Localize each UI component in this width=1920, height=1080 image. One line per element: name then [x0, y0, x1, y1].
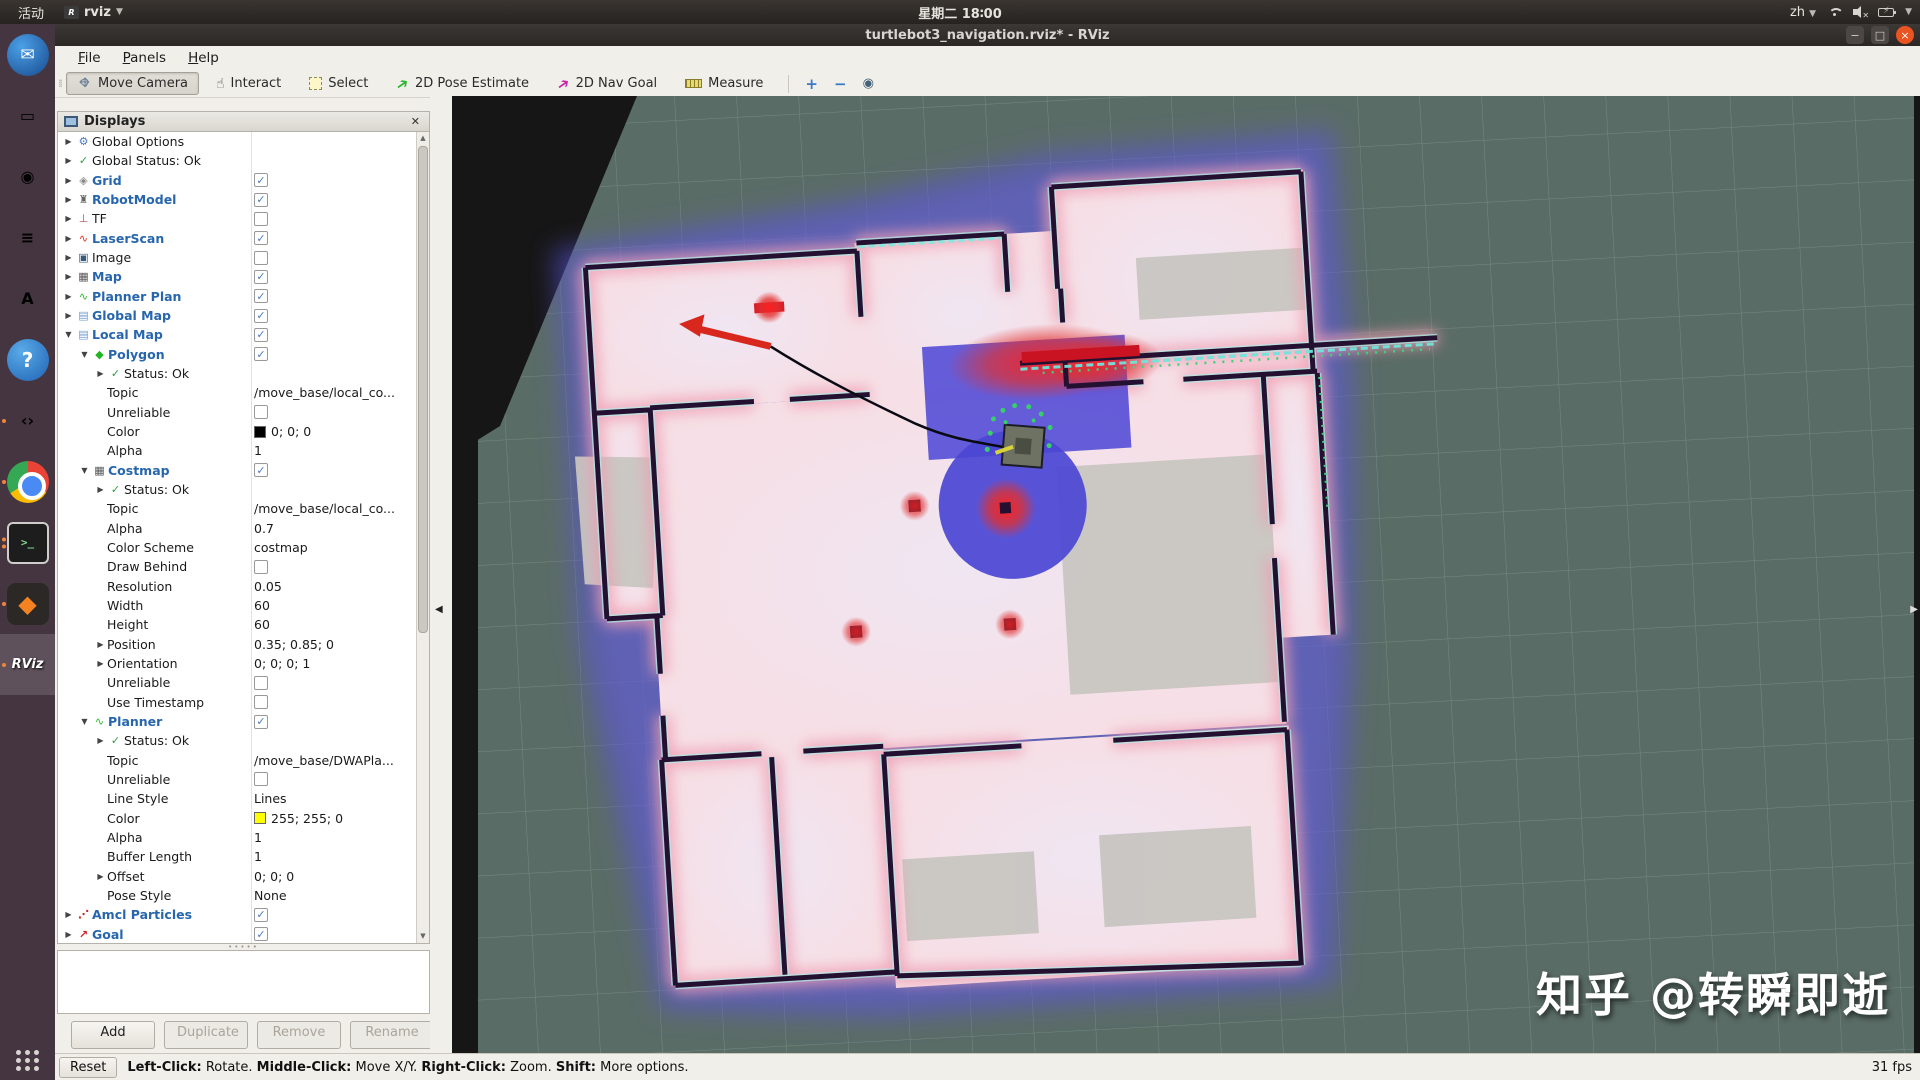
displays-tree: ▲ ▼ ▶⚙Global Options▶✓Global Status: Ok▶…: [57, 132, 430, 944]
tool-interact[interactable]: ☝Interact: [205, 72, 292, 96]
app-menu-label: rviz: [84, 5, 111, 20]
tree-value: 0.35; 0.85; 0: [254, 637, 334, 652]
tree-row-robotmodel[interactable]: ▶♜RobotModel✓: [58, 190, 429, 209]
gazebo-icon: ◆: [7, 583, 49, 625]
tree-row-position[interactable]: ▶Position0.35; 0.85; 0: [58, 635, 429, 654]
tree-label: Costmap: [108, 463, 170, 478]
expander-icon[interactable]: ▶: [62, 292, 75, 301]
tree-label: Status: Ok: [124, 733, 189, 748]
amcl-icon: ⋰: [75, 908, 92, 921]
tree-label: Local Map: [92, 327, 163, 342]
tree-row-amcl-particles[interactable]: ▶⋰Amcl Particles✓: [58, 905, 429, 924]
music-player-icon: ◉: [7, 156, 49, 198]
checkbox-unchecked[interactable]: [254, 676, 268, 690]
tree-row-topic[interactable]: Topic/move_base/DWAPla...: [58, 751, 429, 770]
displays-panel-title: Displays: [84, 114, 145, 129]
tree-label: Planner: [108, 714, 162, 729]
fps-counter: 31 fps: [1872, 1060, 1920, 1075]
nav-goal-icon: ➔: [553, 73, 574, 95]
toolbar-grip[interactable]: ⁞⁞: [55, 77, 66, 90]
displays-panel-header[interactable]: Displays ✕: [57, 111, 430, 132]
collapse-left-icon[interactable]: ◀: [435, 604, 443, 615]
expander-icon[interactable]: ▶: [62, 311, 75, 320]
value-text[interactable]: 0; 0; 0: [254, 869, 294, 884]
checkbox-checked[interactable]: ✓: [254, 193, 268, 207]
grid-icon: ◈: [75, 174, 92, 187]
tree-row-tf[interactable]: ▶⊥TF: [58, 209, 429, 228]
launcher-item-terminal-icon[interactable]: >_: [0, 512, 55, 573]
tree-value: ✓: [254, 328, 268, 342]
menubar: FilePanelsHelp: [55, 46, 1920, 70]
tree-value: 1: [254, 849, 262, 864]
image-icon: ▣: [75, 251, 92, 264]
expander-icon[interactable]: ▶: [94, 369, 107, 378]
tree-row-color-scheme[interactable]: Color Schemecostmap: [58, 538, 429, 557]
value-text[interactable]: 1: [254, 443, 262, 458]
tool-measure[interactable]: Measure: [674, 72, 774, 95]
tree-row-status-ok[interactable]: ▶✓Status: Ok: [58, 480, 429, 499]
expander-icon[interactable]: ▶: [62, 253, 75, 262]
checkbox-checked[interactable]: ✓: [254, 715, 268, 729]
menu-help[interactable]: Help: [179, 48, 228, 68]
expander-icon[interactable]: ▼: [78, 466, 91, 475]
tree-row-laserscan[interactable]: ▶∿LaserScan✓: [58, 229, 429, 248]
select-icon: [309, 77, 322, 90]
tool-label: 2D Pose Estimate: [415, 76, 529, 91]
checkbox-checked[interactable]: ✓: [254, 289, 268, 303]
tree-label: Planner Plan: [92, 289, 181, 304]
value-text[interactable]: 0.05: [254, 579, 282, 594]
launcher-item-music-player-icon[interactable]: ◉: [0, 146, 55, 207]
expander-icon[interactable]: ▶: [62, 176, 75, 185]
tree-value: [254, 560, 268, 574]
measure-icon: [685, 79, 702, 88]
activities-button[interactable]: 活动: [12, 3, 50, 22]
tree-resize-handle[interactable]: •••••: [57, 944, 430, 949]
tree-row-local-map[interactable]: ▼▤Local Map✓: [58, 325, 429, 344]
tree-row-costmap[interactable]: ▼▦Costmap✓: [58, 461, 429, 480]
toolbar-separator: [788, 75, 789, 93]
eye-icon[interactable]: ◉: [855, 76, 882, 91]
tree-label: Global Status: Ok: [92, 153, 201, 168]
tree-value: ✓: [254, 231, 268, 245]
tray-caret-icon[interactable]: ▼: [1905, 7, 1912, 17]
render-viewport[interactable]: 知乎 @转瞬即逝 ▶: [452, 96, 1920, 1053]
menu-file[interactable]: File: [69, 48, 110, 68]
tree-label: Grid: [92, 173, 122, 188]
tree-value: Lines: [254, 791, 287, 806]
checkbox-unchecked[interactable]: [254, 405, 268, 419]
chrome-icon: [7, 461, 49, 503]
mouse-help-text: Left-Click: Rotate. Middle-Click: Move X…: [127, 1060, 688, 1075]
tree-label: Map: [92, 269, 122, 284]
folder-icon: ▤: [75, 309, 92, 322]
tree-row-planner-plan[interactable]: ▶∿Planner Plan✓: [58, 287, 429, 306]
color-swatch[interactable]: [254, 426, 266, 438]
tree-row-grid[interactable]: ▶◈Grid✓: [58, 171, 429, 190]
tree-row-unreliable[interactable]: Unreliable: [58, 403, 429, 422]
tree-value: 0; 0; 0: [254, 869, 294, 884]
tree-value: ✓: [254, 289, 268, 303]
tree-row-color[interactable]: Color255; 255; 0: [58, 808, 429, 827]
tree-row-global-status-ok[interactable]: ▶✓Global Status: Ok: [58, 151, 429, 170]
tree-label: Resolution: [107, 579, 172, 594]
pose-estimate-icon: ➔: [392, 73, 413, 95]
tree-label: Polygon: [108, 347, 165, 362]
tree-value: [254, 251, 268, 265]
checkbox-checked[interactable]: ✓: [254, 347, 268, 361]
running-indicator: [2, 419, 6, 423]
value-text[interactable]: 0; 0; 0; 1: [254, 656, 310, 671]
clock[interactable]: 星期二 18∶00: [918, 0, 1002, 24]
tree-row-unreliable[interactable]: Unreliable: [58, 770, 429, 789]
checkbox-checked[interactable]: ✓: [254, 270, 268, 284]
rviz-icon: RViz: [7, 644, 49, 686]
window-titlebar[interactable]: turtlebot3_navigation.rviz* - RViz −□×: [55, 24, 1920, 46]
gear-icon: ⚙: [75, 135, 92, 148]
launcher-item-file-archive-icon[interactable]: ▭: [0, 85, 55, 146]
path-icon: ∿: [91, 715, 108, 728]
tree-label: Unreliable: [107, 772, 170, 787]
check-icon: ✓: [107, 483, 124, 496]
tree-label: Draw Behind: [107, 559, 187, 574]
tree-row-planner[interactable]: ▼∿Planner✓: [58, 712, 429, 731]
tree-value: [254, 695, 268, 709]
thunderbird-icon: ✉: [7, 34, 49, 76]
tree-row-status-ok[interactable]: ▶✓Status: Ok: [58, 364, 429, 383]
tool-label: 2D Nav Goal: [576, 76, 658, 91]
tree-row-goal[interactable]: ▶↗Goal✓: [58, 924, 429, 943]
value-text[interactable]: 0.7: [254, 521, 274, 536]
value-text[interactable]: costmap: [254, 540, 308, 555]
tree-label: Color Scheme: [107, 540, 194, 555]
interact-icon: ☝: [216, 76, 225, 92]
tree-value: ✓: [254, 173, 268, 187]
help-icon: ?: [7, 339, 49, 381]
duplicate-button: Duplicate: [164, 1021, 248, 1049]
tree-label: Color: [107, 811, 140, 826]
value-text[interactable]: /move_base/local_co...: [254, 501, 395, 516]
menu-panels[interactable]: Panels: [114, 48, 175, 68]
tree-value: ✓: [254, 309, 268, 323]
color-swatch[interactable]: [254, 812, 266, 824]
value-text[interactable]: 1: [254, 849, 262, 864]
launcher-item-thunderbird-icon[interactable]: ✉: [0, 24, 55, 85]
tree-value: None: [254, 888, 287, 903]
tree-row-orientation[interactable]: ▶Orientation0; 0; 0; 1: [58, 654, 429, 673]
tool-select[interactable]: Select: [298, 72, 379, 95]
running-indicator: [2, 480, 6, 484]
tree-value: ✓: [254, 463, 268, 477]
tool-move-camera[interactable]: ↔↔Move Camera: [66, 72, 199, 95]
rviz-window: turtlebot3_navigation.rviz* - RViz −□× F…: [55, 24, 1920, 1080]
tree-label: Amcl Particles: [92, 907, 192, 922]
polygon-icon: ◆: [91, 348, 108, 361]
tree-row-resolution[interactable]: Resolution0.05: [58, 577, 429, 596]
tree-row-global-map[interactable]: ▶▤Global Map✓: [58, 306, 429, 325]
check-icon: ✓: [107, 734, 124, 747]
tf-icon: ⊥: [75, 212, 92, 225]
checkbox-checked[interactable]: ✓: [254, 328, 268, 342]
expander-icon[interactable]: ▶: [62, 137, 75, 146]
tool-label: Move Camera: [98, 76, 188, 91]
expander-icon[interactable]: ▼: [62, 330, 75, 339]
tree-row-line-style[interactable]: Line StyleLines: [58, 789, 429, 808]
ubuntu-software-icon: A: [7, 278, 49, 320]
launcher-item-gazebo-icon[interactable]: ◆: [0, 573, 55, 634]
language-indicator[interactable]: zh ▼: [1790, 5, 1816, 20]
tree-label: Unreliable: [107, 675, 170, 690]
value-text[interactable]: 60: [254, 598, 270, 613]
running-indicator: [2, 602, 6, 606]
apps-grid-icon: [16, 1050, 40, 1071]
folder-icon: ▤: [75, 328, 92, 341]
tree-label: Topic: [107, 385, 138, 400]
tree-value: /move_base/local_co...: [254, 501, 395, 516]
expander-icon[interactable]: ▶: [94, 736, 107, 745]
expander-icon[interactable]: ▶: [62, 214, 75, 223]
expander-icon[interactable]: ▶: [62, 272, 75, 281]
add-button[interactable]: Add: [71, 1021, 155, 1049]
tree-value: ✓: [254, 715, 268, 729]
description-pane: [57, 950, 430, 1014]
tree-label: Offset: [107, 869, 145, 884]
show-applications-button[interactable]: [0, 1040, 55, 1080]
zoom-in-icon[interactable]: +: [797, 75, 826, 93]
tree-value: 1: [254, 443, 262, 458]
rename-button: Rename: [350, 1021, 434, 1049]
app-menu[interactable]: R rviz ▼: [64, 5, 123, 20]
reset-button[interactable]: Reset: [59, 1057, 117, 1078]
expander-icon[interactable]: ▶: [62, 195, 75, 204]
panel-splitter[interactable]: ◀: [430, 96, 452, 1053]
tool-2d-nav-goal[interactable]: ➔2D Nav Goal: [546, 71, 668, 97]
value-text[interactable]: Lines: [254, 791, 287, 806]
checkbox-checked[interactable]: ✓: [254, 231, 268, 245]
tree-row-height[interactable]: Height60: [58, 615, 429, 634]
toolbar: ⁞⁞ ↔↔Move Camera☝InteractSelect➔2D Pose …: [55, 70, 1920, 98]
laser-icon: ∿: [75, 232, 92, 245]
tree-value: ✓: [254, 270, 268, 284]
tree-row-image[interactable]: ▶▣Image: [58, 248, 429, 267]
checkbox-checked[interactable]: ✓: [254, 927, 268, 941]
navigation-map-canvas[interactable]: [452, 96, 1920, 1053]
expander-icon[interactable]: ▶: [62, 910, 75, 919]
tree-label: Global Options: [92, 134, 184, 149]
tree-row-width[interactable]: Width60: [58, 596, 429, 615]
vscode-icon: ‹›: [7, 400, 49, 442]
value-text[interactable]: /move_base/DWAPla...: [254, 753, 394, 768]
value-text[interactable]: 0; 0; 0: [271, 424, 311, 439]
launcher-item-help-icon[interactable]: ?: [0, 329, 55, 390]
tree-row-alpha[interactable]: Alpha0.7: [58, 519, 429, 538]
tree-label: Line Style: [107, 791, 168, 806]
value-text[interactable]: 255; 255; 0: [271, 811, 343, 826]
check-icon: ✓: [107, 367, 124, 380]
tree-value: [254, 212, 268, 226]
tree-row-map[interactable]: ▶▦Map✓: [58, 267, 429, 286]
volume-muted-icon[interactable]: ✕: [1853, 6, 1867, 18]
tree-row-alpha[interactable]: Alpha1: [58, 828, 429, 847]
expander-icon[interactable]: ▶: [62, 930, 75, 939]
map-icon: ▦: [75, 270, 92, 283]
tree-label: Buffer Length: [107, 849, 192, 864]
chevron-down-icon: ▼: [116, 7, 123, 17]
tree-row-use-timestamp[interactable]: Use Timestamp: [58, 693, 429, 712]
remove-button: Remove: [257, 1021, 341, 1049]
tree-value: [254, 772, 268, 786]
launcher-item-chrome-icon[interactable]: [0, 451, 55, 512]
tree-value: 0; 0; 0; 1: [254, 656, 310, 671]
tree-label: Orientation: [107, 656, 178, 671]
file-archive-icon: ▭: [7, 95, 49, 137]
tool-label: Measure: [708, 76, 763, 91]
tree-label: Topic: [107, 501, 138, 516]
tree-value: ✓: [254, 347, 268, 361]
expander-icon[interactable]: ▼: [78, 717, 91, 726]
checkbox-unchecked[interactable]: [254, 212, 268, 226]
checkbox-unchecked[interactable]: [254, 560, 268, 574]
displays-panel: Displays ✕ ▲ ▼ ▶⚙Global Options▶✓Global …: [57, 96, 430, 1053]
expander-icon[interactable]: ▶: [94, 659, 107, 668]
displays-icon: [64, 116, 78, 127]
tree-value: ✓: [254, 193, 268, 207]
checkbox-unchecked[interactable]: [254, 695, 268, 709]
checkbox-checked[interactable]: ✓: [254, 463, 268, 477]
robot-icon: ♜: [75, 193, 92, 206]
running-indicator: [2, 663, 6, 667]
tree-row-offset[interactable]: ▶Offset0; 0; 0: [58, 866, 429, 885]
tree-label: LaserScan: [92, 231, 164, 246]
check-icon: ✓: [75, 154, 92, 167]
watermark: 知乎 @转瞬即逝: [1536, 959, 1890, 1025]
expander-icon[interactable]: ▼: [78, 350, 91, 359]
tree-value: [254, 405, 268, 419]
value-text[interactable]: /move_base/local_co...: [254, 385, 395, 400]
tree-label: Global Map: [92, 308, 171, 323]
tree-label: Alpha: [107, 830, 143, 845]
tree-row-polygon[interactable]: ▼◆Polygon✓: [58, 345, 429, 364]
checkbox-checked[interactable]: ✓: [254, 908, 268, 922]
tree-value: 0.7: [254, 521, 274, 536]
tree-label: TF: [92, 211, 107, 226]
value-text[interactable]: None: [254, 888, 287, 903]
move-camera-icon: ↔↔: [77, 76, 92, 91]
checkbox-checked[interactable]: ✓: [254, 173, 268, 187]
tree-row-global-options[interactable]: ▶⚙Global Options: [58, 132, 429, 151]
tree-value: ✓: [254, 908, 268, 922]
tree-label: Goal: [92, 927, 124, 942]
tree-label: Color: [107, 424, 140, 439]
launcher-item-rviz-icon[interactable]: RViz: [0, 634, 55, 695]
tree-value: 60: [254, 617, 270, 632]
wifi-icon[interactable]: [1827, 7, 1842, 18]
launcher-dock: ✉▭◉≡A?‹›>_◆RViz: [0, 24, 55, 1080]
expander-icon[interactable]: ▶: [62, 234, 75, 243]
collapse-right-icon[interactable]: ▶: [1910, 604, 1918, 615]
close-button[interactable]: ×: [1896, 26, 1914, 44]
tree-label: RobotModel: [92, 192, 176, 207]
tree-label: Unreliable: [107, 405, 170, 420]
libreoffice-writer-icon: ≡: [7, 217, 49, 259]
running-indicator: [2, 537, 6, 548]
value-text[interactable]: 1: [254, 830, 262, 845]
tree-row-unreliable[interactable]: Unreliable: [58, 673, 429, 692]
tree-label: Width: [107, 598, 143, 613]
window-title: turtlebot3_navigation.rviz* - RViz: [865, 28, 1109, 43]
checkbox-checked[interactable]: ✓: [254, 309, 268, 323]
tree-row-buffer-length[interactable]: Buffer Length1: [58, 847, 429, 866]
system-topbar: 活动 R rviz ▼ 星期二 18∶00 zh ▼ ✕ ⚡ ▼: [0, 0, 1920, 24]
expander-icon[interactable]: ▶: [62, 156, 75, 165]
tree-value: 255; 255; 0: [254, 811, 343, 826]
tree-value: ✓: [254, 927, 268, 941]
tool-label: Select: [328, 76, 368, 91]
tree-label: Image: [92, 250, 131, 265]
tree-row-topic[interactable]: Topic/move_base/local_co...: [58, 499, 429, 518]
tree-label: Pose Style: [107, 888, 171, 903]
map-icon: ▦: [91, 464, 108, 477]
tree-value: /move_base/local_co...: [254, 385, 395, 400]
tree-value: costmap: [254, 540, 308, 555]
tree-label: Status: Ok: [124, 482, 189, 497]
tool-2d-pose-estimate[interactable]: ➔2D Pose Estimate: [385, 71, 540, 97]
terminal-icon: >_: [7, 522, 49, 564]
tree-label: Status: Ok: [124, 366, 189, 381]
tree-value: 60: [254, 598, 270, 613]
expander-icon[interactable]: ▶: [94, 640, 107, 649]
tree-label: Topic: [107, 753, 138, 768]
launcher-item-ubuntu-software-icon[interactable]: A: [0, 268, 55, 329]
tree-value: [254, 676, 268, 690]
tree-row-status-ok[interactable]: ▶✓Status: Ok: [58, 731, 429, 750]
zoom-out-icon[interactable]: −: [826, 75, 855, 93]
tree-value: 0.05: [254, 579, 282, 594]
battery-icon[interactable]: ⚡: [1878, 8, 1894, 17]
expander-icon[interactable]: ▶: [94, 872, 107, 881]
value-text[interactable]: 60: [254, 617, 270, 632]
robot-model: [1002, 425, 1045, 468]
tree-label: Alpha: [107, 443, 143, 458]
checkbox-unchecked[interactable]: [254, 772, 268, 786]
path-icon: ∿: [75, 290, 92, 303]
tree-value: 0; 0; 0: [254, 424, 311, 439]
rviz-app-icon: R: [64, 6, 79, 19]
tool-label: Interact: [231, 76, 282, 91]
tree-row-draw-behind[interactable]: Draw Behind: [58, 557, 429, 576]
tree-label: Alpha: [107, 521, 143, 536]
value-text[interactable]: 0.35; 0.85; 0: [254, 637, 334, 652]
launcher-item-libreoffice-writer-icon[interactable]: ≡: [0, 207, 55, 268]
tree-label: Position: [107, 637, 156, 652]
checkbox-unchecked[interactable]: [254, 251, 268, 265]
tree-row-alpha[interactable]: Alpha1: [58, 441, 429, 460]
costmap-map: [548, 122, 1477, 1037]
maximize-button[interactable]: □: [1871, 26, 1889, 44]
tree-value: 1: [254, 830, 262, 845]
tree-row-topic[interactable]: Topic/move_base/local_co...: [58, 383, 429, 402]
expander-icon[interactable]: ▶: [94, 485, 107, 494]
tree-label: Use Timestamp: [107, 695, 204, 710]
tree-row-pose-style[interactable]: Pose StyleNone: [58, 886, 429, 905]
goal-icon: ↗: [75, 928, 92, 941]
close-icon[interactable]: ✕: [408, 115, 423, 128]
tree-value: /move_base/DWAPla...: [254, 753, 394, 768]
minimize-button[interactable]: −: [1846, 26, 1864, 44]
launcher-item-vscode-icon[interactable]: ‹›: [0, 390, 55, 451]
statusbar: Reset Left-Click: Rotate. Middle-Click: …: [55, 1053, 1920, 1080]
tree-row-color[interactable]: Color0; 0; 0: [58, 422, 429, 441]
